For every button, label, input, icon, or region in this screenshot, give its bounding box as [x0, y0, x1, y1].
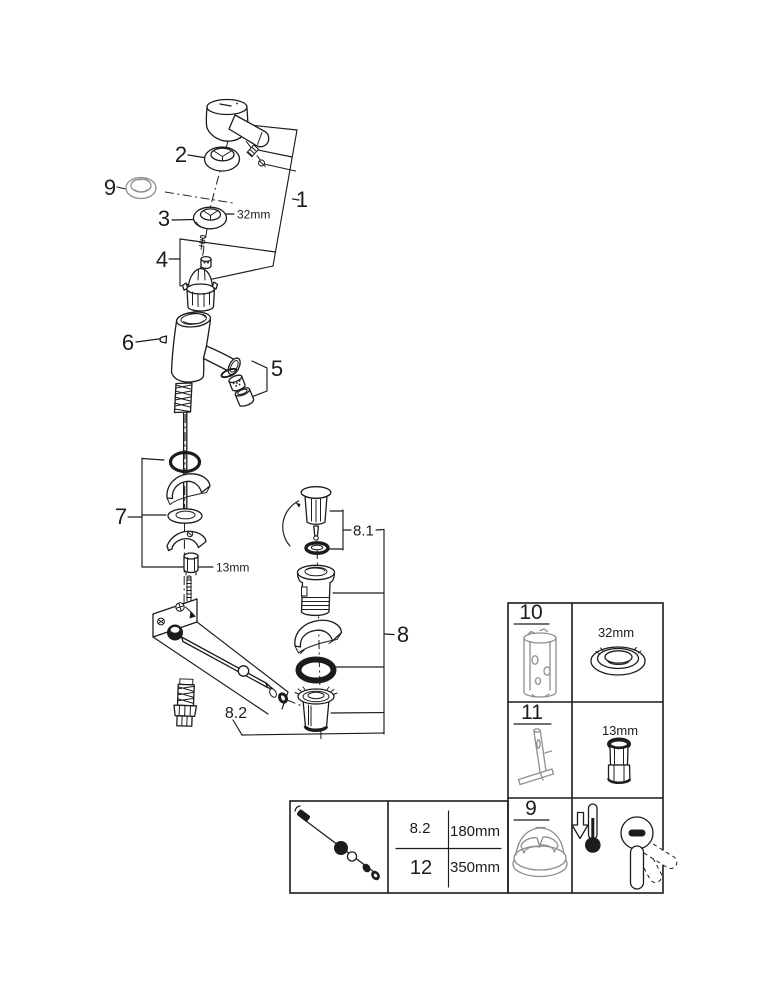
- callout-5: 5: [271, 356, 283, 381]
- faucet-body: [160, 310, 243, 382]
- callout-4: 4: [156, 247, 168, 272]
- dim-13mm-label: 13mm: [216, 561, 249, 575]
- mounting-set: [167, 453, 210, 602]
- rotation-arrow-icon: [283, 501, 301, 546]
- pull-rod: [182, 637, 288, 703]
- drain-o-ring: [299, 660, 334, 681]
- aerator: [220, 367, 254, 408]
- dim-32mm-label: 32mm: [237, 208, 270, 222]
- mounting-washer: [168, 509, 202, 523]
- rod-row2-number: 12: [410, 857, 432, 879]
- accessory-row3-number: 9: [525, 797, 537, 820]
- callout-8-2: 8.2: [225, 705, 247, 722]
- rod-row1-dim: 180mm: [450, 823, 500, 840]
- temperature-limiter-icon: [513, 828, 567, 877]
- exploded-parts-diagram-page: 1 2 3 4 5 6 7 8 9 8.1 8.2 32mm 13mm 10 3…: [0, 0, 769, 1000]
- callout-1: 1: [296, 187, 308, 212]
- mounting-nut: [184, 553, 198, 575]
- drain-flange: [298, 565, 335, 615]
- threaded-stud: [187, 576, 192, 601]
- callout-7: 7: [115, 504, 127, 529]
- pop-up-plug: [301, 487, 331, 554]
- lever-handle: [206, 100, 269, 147]
- accessory-table: 10 32mm 11 13mm: [508, 601, 679, 893]
- socket-13mm-icon: [608, 740, 629, 784]
- accessory-row1-number: 10: [519, 601, 542, 624]
- accessory-row1-dim: 32mm: [598, 625, 634, 640]
- mounting-plate: [153, 599, 197, 641]
- mounting-wrench-tool-icon: [519, 729, 554, 785]
- cartridge: [183, 269, 218, 312]
- callout-9: 9: [104, 175, 116, 200]
- cartridge-adapter-icon: [201, 257, 211, 269]
- mounting-clamp: [167, 531, 206, 550]
- handle-screw-icon: [247, 145, 264, 166]
- accessory-row2-number: 11: [521, 701, 543, 724]
- pop-up-rod-icon: [293, 805, 381, 882]
- callout-6: 6: [122, 330, 134, 355]
- callout-2: 2: [175, 142, 187, 167]
- callout-8: 8: [397, 622, 409, 647]
- escutcheon-ring-32mm-icon: [591, 647, 645, 675]
- flex-hose-connector: [173, 679, 197, 727]
- rod-row1-number: 8.2: [410, 820, 431, 837]
- drain-cup: [295, 687, 337, 731]
- rod-row2-dim: 350mm: [450, 859, 500, 876]
- faucet-exploded-diagram: 1 2 3 4 5 6 7 8 9 8.1 8.2 32mm 13mm 10 3…: [0, 0, 769, 1000]
- callout-labels: 1 2 3 4 5 6 7 8 9 8.1 8.2 32mm 13mm: [104, 142, 409, 722]
- temperature-limiter: [126, 178, 156, 199]
- drain-wedge: [295, 620, 342, 653]
- cartridge-removal-tool-icon: [524, 629, 556, 697]
- mounting-wedge: [167, 474, 210, 505]
- callout-8-1: 8.1: [353, 523, 374, 540]
- cold-thermometer-icon: [572, 804, 601, 853]
- accessory-row2-dim: 13mm: [602, 723, 638, 738]
- escutcheon-ring: [194, 207, 227, 229]
- handle-ring: [205, 147, 240, 171]
- callout-3: 3: [158, 206, 170, 231]
- lever-rotation-icon: [621, 817, 679, 889]
- rod-length-table: 8.2 180mm 12 350mm: [290, 801, 508, 893]
